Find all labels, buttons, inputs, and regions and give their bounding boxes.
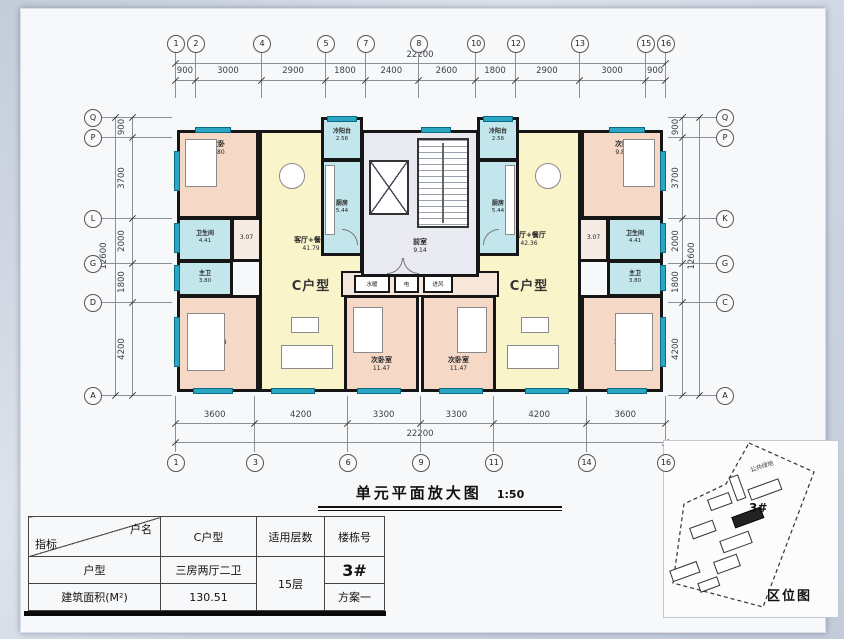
- segment-dimension-label: 2000: [671, 218, 681, 264]
- dining-table-icon: [279, 163, 305, 189]
- room-label: 卫生间 4.41: [180, 230, 230, 244]
- window: [327, 116, 357, 122]
- grid-line: [101, 302, 172, 303]
- room-label: 冷阳台 2.56: [324, 128, 360, 142]
- segment-dimension-label: 4200: [271, 410, 331, 420]
- coffee-table-icon: [521, 317, 549, 333]
- room-name: 冷阳台: [489, 128, 507, 135]
- table-row-area-label: 建筑面积(M²): [29, 584, 161, 611]
- grid-bubble: A: [84, 387, 102, 405]
- room-label: 主卫 3.80: [610, 270, 660, 284]
- title-text: 单元平面放大图: [356, 484, 482, 502]
- room-bath-right: 卫生间 4.41: [607, 217, 663, 262]
- kitchen-counter-icon: [505, 165, 515, 235]
- room-name: 厨房: [492, 200, 504, 207]
- room-area: 3.80: [180, 278, 230, 285]
- room-area: 4.41: [610, 238, 660, 245]
- grid-bubble: P: [84, 129, 102, 147]
- title-underline: [318, 510, 562, 511]
- segment-dimension-label: 2400: [361, 66, 421, 76]
- window: [483, 116, 513, 122]
- grid-line: [668, 395, 716, 396]
- grid-bubble: 4: [253, 35, 271, 53]
- dimension-line: [699, 117, 700, 395]
- segment-dimension-label: 3000: [198, 66, 258, 76]
- segment-dimension-label: 2900: [517, 66, 577, 76]
- location-map-title: 区位图: [767, 588, 812, 604]
- window: [174, 223, 180, 253]
- bed-icon: [457, 307, 487, 353]
- total-dimension-label: 12600: [99, 233, 109, 279]
- kitchen-counter-icon: [325, 165, 335, 235]
- grid-bubble: P: [716, 129, 734, 147]
- room-area: 3.07: [581, 234, 606, 242]
- table-header-floors: 适用层数: [257, 517, 325, 557]
- window: [271, 388, 315, 394]
- room-hall-right: 3.07: [578, 217, 609, 262]
- segment-dimension-label: 1800: [117, 259, 127, 305]
- segment-dimension-label: 4200: [509, 410, 569, 420]
- bed-icon: [615, 313, 653, 371]
- window: [525, 388, 569, 394]
- room-label: 卫生间 4.41: [610, 230, 660, 244]
- room-area: 11.47: [347, 365, 416, 373]
- dimension-line: [682, 117, 683, 395]
- shaft-air: 进风: [423, 275, 453, 293]
- window: [660, 151, 666, 191]
- room-area: 11.47: [424, 365, 493, 373]
- grid-bubble: 8: [410, 35, 428, 53]
- elevator-icon: [369, 160, 409, 215]
- room-name: 次卧室: [448, 356, 469, 364]
- grid-bubble: Q: [84, 109, 102, 127]
- grid-line: [579, 52, 580, 98]
- room-label: 前室 9.14: [364, 238, 476, 254]
- stair-icon: [417, 138, 469, 228]
- location-map: 公共绿地 3# 区位图: [663, 440, 839, 618]
- corner-top-label: 户名: [130, 521, 152, 537]
- floor-plan: 客厅+餐厅 41.79 C户型 客厅+餐厅 42.36 C户型 次卧 9.80 …: [175, 117, 665, 395]
- window: [421, 127, 451, 133]
- room-hall-left: 3.07: [231, 217, 262, 262]
- segment-dimension-label: 3700: [671, 155, 681, 201]
- bed-icon: [185, 139, 217, 187]
- stair-rail: [442, 143, 444, 223]
- room-label: 次卧室 11.47: [347, 356, 416, 372]
- coffee-table-icon: [291, 317, 319, 333]
- room-name: 卫生间: [196, 230, 214, 237]
- segment-dimension-label: 3600: [595, 410, 655, 420]
- room-name: 厨房: [336, 200, 348, 207]
- window: [439, 388, 483, 394]
- room-label: 3.07: [581, 234, 606, 242]
- room-area: 2.56: [324, 136, 360, 143]
- table-floors-value: 15层: [257, 557, 325, 611]
- grid-bubble: 1: [167, 454, 185, 472]
- room-label: 冷阳台 2.56: [480, 128, 516, 142]
- room-area: 2.56: [480, 136, 516, 143]
- room-area: 3.07: [234, 234, 259, 242]
- building-number-label: 3#: [749, 501, 767, 515]
- title-scale: 1:50: [497, 488, 524, 501]
- room-area: 4.41: [180, 238, 230, 245]
- room-label: 3.07: [234, 234, 259, 242]
- grid-bubble: G: [84, 255, 102, 273]
- sofa-icon: [507, 345, 559, 369]
- segment-dimension-label: 4200: [671, 326, 681, 372]
- room-name: 次卧室: [371, 356, 392, 364]
- grid-bubble: Q: [716, 109, 734, 127]
- table-header-building: 楼栋号: [325, 517, 385, 557]
- window: [174, 317, 180, 367]
- grid-bubble: 11: [485, 454, 503, 472]
- grid-bubble: G: [716, 255, 734, 273]
- bed-icon: [353, 307, 383, 353]
- dimension-line: [115, 117, 116, 395]
- table-corner-cell: 户名 指标: [29, 517, 161, 557]
- room-name: 前室: [413, 238, 427, 246]
- grid-bubble: 7: [357, 35, 375, 53]
- grid-bubble: 2: [187, 35, 205, 53]
- grid-line: [101, 395, 172, 396]
- drawing-title: 单元平面放大图 1:50: [318, 482, 562, 511]
- window: [174, 265, 180, 291]
- grid-line: [101, 263, 172, 264]
- room-balcony-left: 冷阳台 2.56: [321, 117, 363, 161]
- window: [607, 388, 647, 394]
- title-underline: [318, 506, 562, 508]
- table-row-type-value: 三房两厅二卫: [161, 557, 257, 584]
- grid-bubble: 12: [507, 35, 525, 53]
- room-master-bath-right: 主卫 3.80: [607, 260, 663, 297]
- room-area: 9.14: [364, 247, 476, 255]
- grid-bubble: 1: [167, 35, 185, 53]
- total-dimension-label: 12600: [687, 233, 697, 279]
- segment-dimension-label: 3300: [354, 410, 414, 420]
- grid-bubble: 14: [578, 454, 596, 472]
- window: [660, 317, 666, 367]
- room-name: 卫生间: [626, 230, 644, 237]
- window: [193, 388, 233, 394]
- segment-dimension-label: 3600: [185, 410, 245, 420]
- room-bath-left: 卫生间 4.41: [177, 217, 233, 262]
- bed-icon: [187, 313, 225, 371]
- table-area-value: 130.51: [161, 584, 257, 611]
- window: [609, 127, 645, 133]
- dimension-line: [132, 117, 133, 395]
- window: [660, 265, 666, 291]
- segment-dimension-label: 3700: [117, 155, 127, 201]
- grid-line: [261, 52, 262, 98]
- grid-bubble: 5: [317, 35, 335, 53]
- window: [195, 127, 231, 133]
- table-scheme-value: 方案一: [325, 584, 385, 611]
- room-area: 3.80: [610, 278, 660, 285]
- grid-bubble: 16: [657, 35, 675, 53]
- drawing-sheet: 客厅+餐厅 41.79 C户型 客厅+餐厅 42.36 C户型 次卧 9.80 …: [0, 0, 844, 639]
- dining-table-icon: [535, 163, 561, 189]
- sheet-frame-line: [24, 611, 386, 616]
- grid-line: [101, 117, 172, 118]
- table-row-type-label: 户型: [29, 557, 161, 584]
- room-balcony-right: 冷阳台 2.56: [477, 117, 519, 161]
- shaft-plumbing: 水暖: [354, 275, 390, 293]
- room-name: 主卫: [629, 270, 641, 277]
- dimension-line: [175, 80, 665, 81]
- segment-dimension-label: 3300: [426, 410, 486, 420]
- room-name: 主卫: [199, 270, 211, 277]
- room-label: 次卧室 11.47: [424, 356, 493, 372]
- segment-dimension-label: 900: [117, 104, 127, 150]
- core-front-room: 前室 9.14: [361, 130, 479, 277]
- room-master-bath-left: 主卫 3.80: [177, 260, 233, 297]
- grid-bubble: 13: [571, 35, 589, 53]
- segment-dimension-label: 2000: [117, 218, 127, 264]
- sofa-icon: [281, 345, 333, 369]
- segment-dimension-label: 4200: [117, 326, 127, 372]
- window: [660, 223, 666, 253]
- grid-line: [101, 137, 172, 138]
- room-label: 主卫 3.80: [180, 270, 230, 284]
- corner-bottom-label: 指标: [35, 536, 57, 552]
- segment-dimension-label: 1800: [671, 259, 681, 305]
- grid-bubble: 16: [657, 454, 675, 472]
- grid-bubble: 15: [637, 35, 655, 53]
- grid-bubble: A: [716, 387, 734, 405]
- window: [357, 388, 401, 394]
- room-name: 冷阳台: [333, 128, 351, 135]
- window: [174, 151, 180, 191]
- segment-dimension-label: 900: [625, 66, 685, 76]
- bed-icon: [623, 139, 655, 187]
- table-header-unit: C户型: [161, 517, 257, 557]
- unit-spec-table: 户名 指标 C户型 适用层数 楼栋号 户型 三房两厅二卫 15层 3# 建筑面积…: [28, 516, 385, 611]
- shaft-electric: 电: [394, 275, 419, 293]
- grid-line: [101, 218, 172, 219]
- segment-dimension-label: 900: [671, 104, 681, 150]
- table-building-value: 3#: [325, 557, 385, 584]
- grid-bubble: 9: [412, 454, 430, 472]
- dimension-line: [175, 63, 665, 64]
